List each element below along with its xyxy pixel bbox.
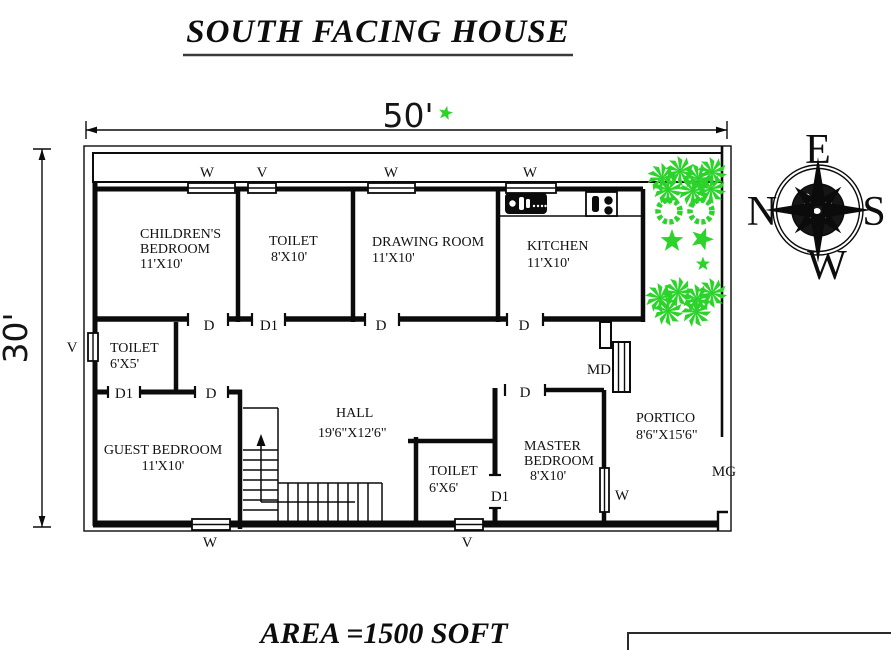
room-guest-bedroom: GUEST BEDROOM 11'X10' [104, 443, 223, 474]
ventilator-label: V [67, 340, 78, 356]
room-toilet-mid: TOILET 6'X6' [429, 464, 478, 496]
compass-south-label: S [862, 189, 885, 235]
window-label: W [615, 488, 630, 504]
door-label: D [206, 386, 217, 402]
floor-plan-svg: SOUTH FACING HOUSE 50' 30' [0, 0, 891, 650]
door-label: D [204, 318, 215, 334]
height-dimension-label: 30' [0, 312, 35, 363]
room-size: 6'X6' [429, 481, 458, 496]
floor-plan-page: SOUTH FACING HOUSE 50' 30' [0, 0, 891, 650]
room-name: KITCHEN [527, 239, 588, 254]
door-label: D [376, 318, 387, 334]
room-toilet-left: TOILET 6'X5' [110, 341, 159, 372]
star-plant-icon [661, 229, 684, 251]
small-star-plant-icon [437, 104, 454, 120]
main-door-label: MD [587, 362, 611, 378]
main-gate-label: MG [712, 464, 736, 480]
window-label: W [203, 535, 218, 551]
star-plant-icon [688, 224, 717, 252]
ventilator-label: V [462, 535, 473, 551]
room-hall: HALL 19'6"X12'6" [318, 406, 387, 441]
room-size: 11'X10' [372, 251, 415, 266]
room-size: 8'X10' [271, 250, 307, 265]
kitchen-counter [500, 192, 641, 216]
room-childrens-bedroom: CHILDREN'S BEDROOM 11'X10' [140, 227, 221, 272]
room-master-bedroom: MASTER BEDROOM 8'X10' [524, 439, 595, 484]
garden-plants [437, 104, 727, 329]
compass-rose: E N S W [747, 127, 886, 289]
room-name: DRAWING ROOM [372, 235, 485, 250]
room-name: BEDROOM [524, 454, 595, 469]
window-label: W [200, 165, 215, 181]
room-size: 8'X10' [530, 469, 566, 484]
room-portico: PORTICO 8'6"X15'6" [636, 411, 698, 443]
room-name: TOILET [269, 234, 318, 249]
wreath-plants [658, 200, 712, 222]
room-drawing-room: DRAWING ROOM 11'X10' [372, 235, 485, 266]
room-size: 6'X5' [110, 357, 139, 372]
room-kitchen: KITCHEN 11'X10' [527, 239, 588, 271]
room-name: PORTICO [636, 411, 695, 426]
opening-labels: W V W W D D1 D D V D1 D D MD D1 W MG W V [67, 165, 737, 551]
area-label: AREA =1500 SOFT [258, 617, 509, 650]
main-door [613, 342, 630, 392]
sink-icon [505, 193, 547, 214]
door1-label: D1 [115, 386, 133, 402]
room-name: HALL [336, 406, 373, 421]
compass-east-label: E [805, 127, 831, 173]
room-name: TOILET [429, 464, 478, 479]
partial-frame-line [628, 633, 891, 650]
room-toilet-top: TOILET 8'X10' [269, 234, 318, 265]
height-dimension: 30' [0, 149, 51, 527]
room-size: 11'X10' [142, 459, 185, 474]
width-dimension-label: 50' [382, 96, 433, 135]
room-name: MASTER [524, 439, 581, 454]
room-name: TOILET [110, 341, 159, 356]
door-label: D [520, 385, 531, 401]
stove-icon [586, 192, 617, 216]
room-size: 11'X10' [140, 257, 183, 272]
room-size: 8'6"X15'6" [636, 428, 698, 443]
page-title: SOUTH FACING HOUSE [186, 14, 570, 50]
window-label: W [384, 165, 399, 181]
room-name: BEDROOM [140, 242, 211, 257]
stair-direction-arrow [257, 434, 356, 502]
room-name: GUEST BEDROOM [104, 443, 223, 458]
ventilator-label: V [257, 165, 268, 181]
room-size: 11'X10' [527, 256, 570, 271]
door1-label: D1 [260, 318, 278, 334]
door1-label: D1 [491, 489, 509, 505]
door-label: D [519, 318, 530, 334]
window-label: W [523, 165, 538, 181]
small-star-plant-icon [696, 257, 710, 270]
compass-north-label: N [747, 189, 777, 235]
compass-west-label: W [807, 243, 847, 289]
width-dimension: 50' [86, 96, 727, 139]
room-size: 19'6"X12'6" [318, 426, 387, 441]
room-name: CHILDREN'S [140, 227, 221, 242]
